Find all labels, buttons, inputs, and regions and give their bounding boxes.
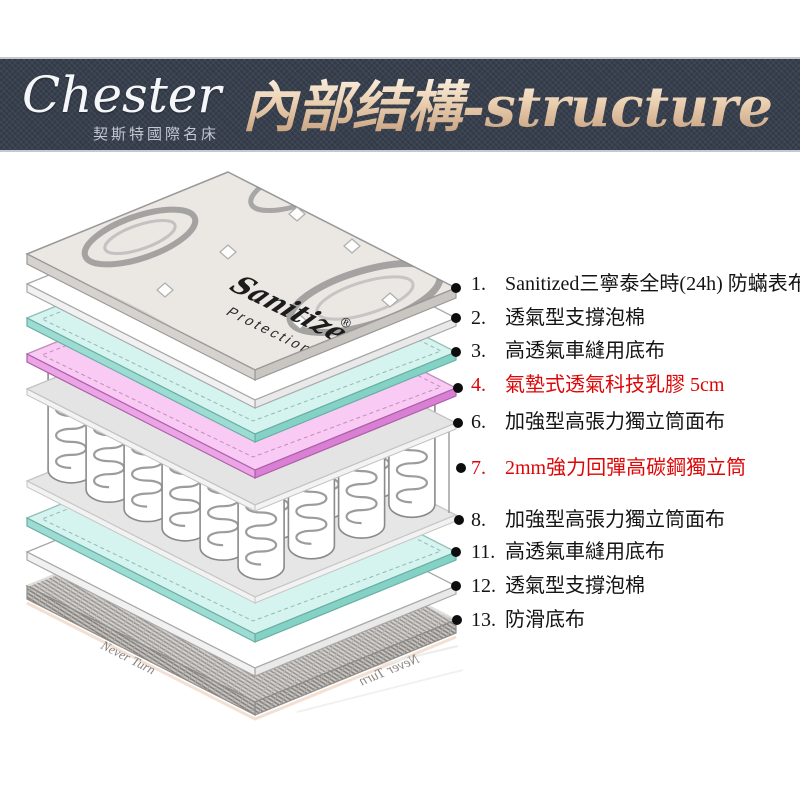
- label-number: 11.: [471, 539, 505, 565]
- label-text: 2mm強力回彈高碳鋼獨立筒: [505, 455, 746, 481]
- label-text: 高透氣車縫用底布: [505, 539, 665, 565]
- label-number: 7.: [471, 455, 505, 481]
- layer-label-6: 6. 加強型高張力獨立筒面布: [471, 409, 725, 435]
- dot-7: [456, 463, 466, 473]
- label-number: 1.: [471, 271, 505, 297]
- layer-label-1: 1. Sanitized三寧泰全時(24h) 防蟎表布: [471, 271, 800, 297]
- layer-label-11: 11. 高透氣車縫用底布: [471, 539, 665, 565]
- mattress-structure-diagram: Never Turn Never Turn: [0, 0, 800, 800]
- label-text: 透氣型支撐泡棉: [505, 305, 645, 331]
- label-text: 透氣型支撐泡棉: [505, 573, 645, 599]
- label-number: 6.: [471, 409, 505, 435]
- label-number: 4.: [471, 372, 505, 398]
- label-number: 8.: [471, 507, 505, 533]
- label-number: 2.: [471, 305, 505, 331]
- dot-2: [451, 313, 461, 323]
- dot-12: [451, 581, 461, 591]
- dot-3: [451, 347, 461, 357]
- layer-label-8: 8. 加強型高張力獨立筒面布: [471, 507, 725, 533]
- label-text: 加強型高張力獨立筒面布: [505, 507, 725, 533]
- label-text: 氣墊式透氣科技乳膠 5cm: [505, 372, 724, 398]
- layer-label-7: 7. 2mm強力回彈高碳鋼獨立筒: [471, 455, 746, 481]
- layer-label-2: 2. 透氣型支撐泡棉: [471, 305, 645, 331]
- layer-label-3: 3. 高透氣車縫用底布: [471, 338, 665, 364]
- dot-6: [453, 418, 463, 428]
- dot-11: [451, 547, 461, 557]
- label-number: 3.: [471, 338, 505, 364]
- dot-8: [454, 515, 464, 525]
- dot-13: [452, 615, 462, 625]
- dot-4: [453, 383, 463, 393]
- layer-label-12: 12. 透氣型支撐泡棉: [471, 573, 645, 599]
- layer-label-13: 13. 防滑底布: [471, 607, 585, 633]
- label-number: 13.: [471, 607, 505, 633]
- label-text: 防滑底布: [505, 607, 585, 633]
- label-text: Sanitized三寧泰全時(24h) 防蟎表布: [505, 271, 800, 297]
- label-text: 加強型高張力獨立筒面布: [505, 409, 725, 435]
- layer-label-4: 4. 氣墊式透氣科技乳膠 5cm: [471, 372, 724, 398]
- page: Chester 契斯特國際名床 內部结構-structure: [0, 0, 800, 800]
- label-text: 高透氣車縫用底布: [505, 338, 665, 364]
- bullet-dots: [451, 283, 466, 625]
- dot-1: [451, 283, 461, 293]
- label-number: 12.: [471, 573, 505, 599]
